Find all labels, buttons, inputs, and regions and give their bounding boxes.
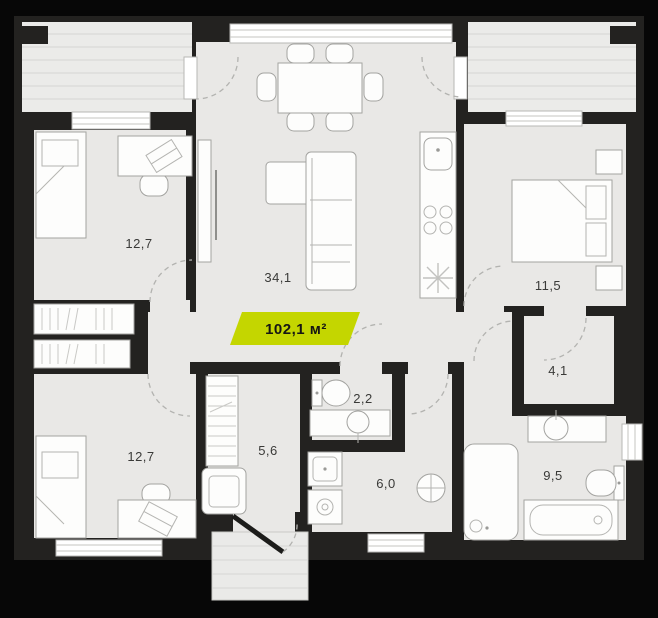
nightstand-icon: [596, 150, 622, 174]
fridge-icon: [423, 263, 453, 293]
window-bedroom-top-left: [72, 112, 150, 129]
label-wardrobe-room: 4,1: [548, 363, 568, 378]
terrace-top-right: [468, 22, 644, 112]
window-shower: [368, 534, 424, 552]
window-bathroom: [622, 424, 642, 460]
total-area-badge: 102,1 м²: [230, 312, 360, 345]
kitchen-counter-icon: [420, 132, 456, 298]
single-bed-icon: [36, 132, 86, 238]
toilet-icon: [312, 380, 350, 406]
double-bed-icon: [512, 180, 612, 262]
label-living-kitchen: 34,1: [264, 270, 291, 285]
washing-machine-icon: [308, 490, 342, 524]
shower-cabin-icon: [464, 444, 518, 540]
label-hallway: 5,6: [258, 443, 278, 458]
nightstand-icon: [596, 266, 622, 290]
bathtub-icon: [524, 500, 618, 540]
label-shower-room: 6,0: [376, 476, 396, 491]
window-bedroom-right: [506, 111, 582, 126]
pier: [14, 26, 48, 44]
kitchen-sink-icon: [424, 138, 452, 170]
label-bedroom-top-left: 12,7: [125, 236, 152, 251]
window-bedroom-bottom-left: [56, 540, 162, 556]
floor-drain-icon: [417, 474, 445, 502]
floor-plan-canvas: 102,1 м² 12,7 34,1 11,5 4,1 12,7 5,6 2,2…: [0, 0, 658, 618]
room-wardrobe: [524, 316, 614, 404]
porch-steps: [212, 532, 308, 600]
window-living: [230, 24, 452, 43]
pier: [610, 26, 644, 44]
single-bed-icon: [36, 436, 86, 538]
hall-wardrobe-icon: [206, 376, 238, 466]
label-bedroom-right: 11,5: [535, 278, 561, 293]
label-bedroom-bottom-left: 12,7: [127, 449, 154, 464]
label-bathroom: 9,5: [543, 468, 563, 483]
bath-passage: [464, 362, 512, 416]
floor-plan: 102,1 м² 12,7 34,1 11,5 4,1 12,7 5,6 2,2…: [0, 0, 658, 618]
terrace-top-left: [14, 22, 192, 112]
total-area-label: 102,1 м²: [265, 321, 327, 338]
laundry-sink-icon: [308, 452, 342, 486]
armchair-icon: [202, 468, 246, 514]
label-wc: 2,2: [353, 391, 373, 406]
